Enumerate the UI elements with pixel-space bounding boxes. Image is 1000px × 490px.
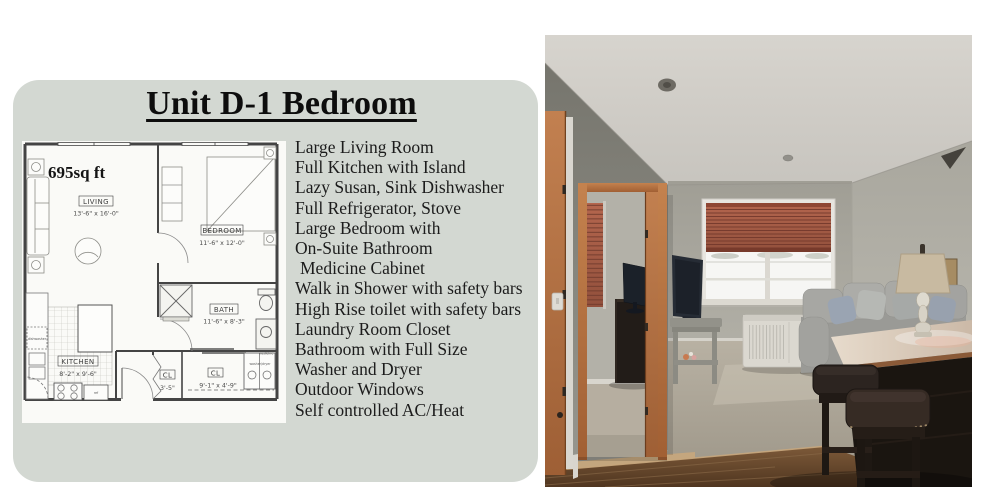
lamp-shade xyxy=(896,254,950,293)
room-label-bedroom: BEDROOM xyxy=(202,227,241,235)
unit-title: Unit D-1 Bedroom xyxy=(19,85,544,123)
bedroom-doorway xyxy=(578,183,673,461)
feature-item: Outdoor Windows xyxy=(295,379,523,399)
apartment-photo xyxy=(545,35,972,487)
room-dims-living: 13'-6" x 16'-0" xyxy=(73,211,119,218)
light-switch xyxy=(552,293,563,310)
room-dims-bedroom: 11'-6" x 12'-0" xyxy=(199,240,245,247)
room-dims-laundry: 9'-1" x 4'-9" xyxy=(199,383,237,390)
hinge-icon xyxy=(563,185,567,194)
feature-item: On-Suite Bathroom xyxy=(295,238,523,258)
room-label-closet: CL xyxy=(163,372,173,380)
area-label: 695sq ft xyxy=(48,163,105,182)
feature-item: Medicine Cabinet xyxy=(295,258,523,278)
feature-item: Lazy Susan, Sink Dishwasher xyxy=(295,177,523,197)
label-dishwasher: dishwasher xyxy=(28,337,47,341)
unit-card: Unit D-1 Bedroom xyxy=(13,80,538,482)
feature-item: Bathroom with Full Size xyxy=(295,339,523,359)
throw-pillow xyxy=(855,289,887,321)
hinge-icon xyxy=(563,387,567,396)
bar-stool xyxy=(846,389,930,487)
room-label-living: LIVING xyxy=(83,198,109,206)
ac-grille xyxy=(748,325,784,359)
label-washer-dryer: washer/dryer xyxy=(249,362,271,366)
floorplan: 695sq ft LIVING 13'-6" x 16'-0" BEDROOM … xyxy=(22,141,286,423)
door-handle-icon xyxy=(557,412,563,418)
recessed-light-icon xyxy=(783,155,793,161)
throw-pillow xyxy=(827,295,858,326)
feature-item: Full Kitchen with Island xyxy=(295,157,523,177)
feature-item: Large Bedroom with xyxy=(295,218,523,238)
couch-arm xyxy=(799,317,829,367)
feature-item: High Rise toilet with safety bars xyxy=(295,299,523,319)
room-label-bath: BATH xyxy=(214,306,234,314)
room-label-kitchen: KITCHEN xyxy=(61,358,94,366)
room-label-laundry: CL xyxy=(211,370,221,378)
smoke-detector-icon xyxy=(658,79,676,92)
feature-item: Washer and Dryer xyxy=(295,359,523,379)
window-blinds xyxy=(706,203,831,252)
feature-item: Large Living Room xyxy=(295,137,523,157)
throw-pillow xyxy=(927,295,957,323)
room-dims-bath: 11'-6" x 8'-3" xyxy=(203,319,245,326)
floorplan-kitchen xyxy=(26,293,112,400)
feature-list: Large Living Room Full Kitchen with Isla… xyxy=(295,137,523,420)
room-dims-closet: 3'-5" xyxy=(160,385,175,392)
room-dims-kitchen: 8'-2" x 9'-6" xyxy=(59,371,97,378)
label-medicine: medicine xyxy=(259,352,274,356)
feature-item: Full Refrigerator, Stove xyxy=(295,198,523,218)
feature-item: Laundry Room Closet xyxy=(295,319,523,339)
feature-item: Walk in Shower with safety bars xyxy=(295,278,523,298)
feature-item: Self controlled AC/Heat xyxy=(295,400,523,420)
